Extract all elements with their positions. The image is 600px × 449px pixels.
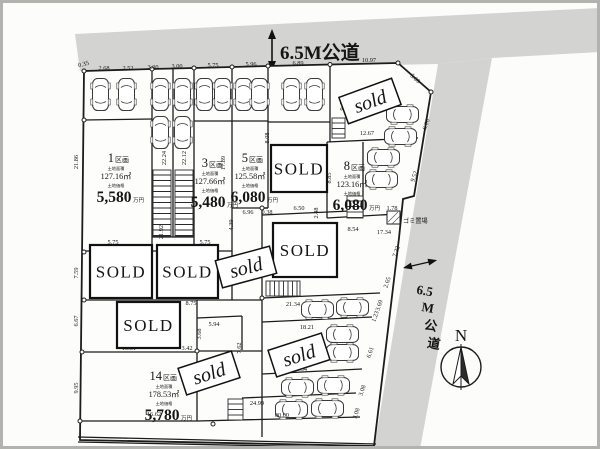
dimension-label: 17.34 bbox=[377, 229, 392, 236]
dimension-label: 5.96 bbox=[245, 61, 256, 68]
car-icon bbox=[282, 79, 301, 111]
sold-text: SOLD bbox=[162, 263, 212, 282]
dimension-label: 6.96 bbox=[242, 209, 253, 216]
boundary-node bbox=[266, 64, 270, 68]
boundary-node bbox=[82, 69, 86, 73]
lot-price: 5,780 bbox=[145, 407, 180, 424]
lot-price-label: 土地価格 bbox=[242, 182, 260, 189]
dimension-label: 21.92 bbox=[158, 225, 165, 239]
lot-price-label: 土地価格 bbox=[344, 190, 362, 197]
car-icon bbox=[366, 170, 398, 189]
dimension-label: 1.78 bbox=[386, 205, 397, 212]
lot-area: 178.53㎡ bbox=[149, 390, 180, 399]
svg-text:公: 公 bbox=[423, 317, 438, 334]
dimension-label: 0.38 bbox=[261, 209, 272, 216]
lot-price-label: 土地価格 bbox=[202, 187, 220, 194]
boundary-node bbox=[82, 250, 86, 254]
car-icon bbox=[195, 79, 214, 111]
dimension-label: 3.68 bbox=[196, 328, 203, 339]
car-icon bbox=[385, 127, 417, 146]
dimension-label: 6.50 bbox=[293, 205, 304, 212]
boundary-node bbox=[80, 350, 84, 354]
sold-stamp: SOLD bbox=[271, 145, 327, 192]
lot-area-label: 土地面積 bbox=[202, 170, 220, 177]
dimension-label: 10.97 bbox=[362, 57, 376, 64]
lot-price-unit: 万円 bbox=[267, 197, 279, 204]
lot-number-suffix: 区画 bbox=[209, 161, 223, 169]
sold-stamp: SOLD bbox=[273, 223, 337, 277]
plot-map: 6.5M公道 6.5 M 公 道 ゴミ置場 N bbox=[0, 0, 600, 449]
lot-number-suffix: 区画 bbox=[115, 156, 129, 164]
car-icon bbox=[302, 300, 334, 319]
dimension-label: 6.67 bbox=[73, 315, 80, 326]
boundary-node bbox=[230, 65, 234, 69]
boundary-node bbox=[429, 90, 433, 94]
sold-stamp: SOLD bbox=[90, 245, 152, 298]
lot-area-label: 土地面積 bbox=[108, 165, 126, 172]
boundary-node bbox=[396, 61, 400, 65]
dimension-label: 9.95 bbox=[73, 382, 80, 393]
car-icon bbox=[327, 325, 359, 344]
sold-text: SOLD bbox=[274, 160, 324, 179]
car-icon bbox=[318, 376, 350, 395]
dimension-label: 4.39 bbox=[228, 219, 235, 230]
lot-area: 127.16㎡ bbox=[101, 172, 132, 181]
lot-area: 127.66㎡ bbox=[195, 177, 226, 186]
dimension-label: 24.99 bbox=[250, 400, 264, 407]
dimension-label: 3.00 bbox=[147, 64, 158, 71]
lot-number-suffix: 区画 bbox=[351, 164, 365, 172]
stairs-icon bbox=[228, 399, 243, 420]
lot-price: 5,480 bbox=[191, 194, 226, 211]
dimension-label: 2.52 bbox=[122, 65, 133, 72]
lot-number: 5 bbox=[242, 151, 248, 165]
lot-price: 5,580 bbox=[97, 189, 132, 206]
lot-number: 8 bbox=[344, 159, 350, 173]
svg-text:道: 道 bbox=[426, 335, 441, 352]
lot-area-label: 土地面積 bbox=[242, 165, 260, 172]
lot-price: 6,080 bbox=[333, 197, 368, 214]
sold-stamp: SOLD bbox=[117, 302, 180, 348]
sold-text: SOLD bbox=[96, 263, 146, 282]
car-icon bbox=[282, 378, 314, 397]
dimension-label: 18.21 bbox=[300, 324, 314, 331]
lot-price-label: 土地価格 bbox=[108, 182, 126, 189]
dimension-label: 22.24 bbox=[161, 150, 168, 165]
lot-area-label: 土地面積 bbox=[156, 383, 174, 390]
dimension-label: 21.86 bbox=[73, 155, 80, 169]
boundary-node bbox=[78, 419, 82, 423]
car-icon bbox=[151, 79, 170, 111]
lot-price-label: 土地価格 bbox=[156, 400, 174, 407]
sold-text: SOLD bbox=[123, 316, 173, 335]
lot-number: 14 bbox=[150, 369, 163, 383]
car-icon bbox=[337, 298, 369, 317]
dimension-label: 8.08 bbox=[264, 132, 271, 143]
lot-price-unit: 万円 bbox=[369, 205, 381, 212]
dimension-label: 2.48 bbox=[313, 207, 320, 218]
dimension-label: 12.67 bbox=[360, 130, 374, 137]
lot-area-label: 土地面積 bbox=[344, 173, 362, 180]
car-icon bbox=[327, 343, 359, 362]
car-icon bbox=[312, 399, 344, 418]
lot-price-unit: 万円 bbox=[181, 415, 193, 422]
north-label: N bbox=[455, 326, 467, 345]
lot-area: 123.16㎡ bbox=[337, 180, 368, 189]
boundary-node bbox=[211, 422, 215, 426]
plot-map-page: 6.5M公道 6.5 M 公 道 ゴミ置場 N bbox=[0, 0, 600, 449]
lot-number-suffix: 区画 bbox=[249, 156, 263, 164]
garbage-box bbox=[387, 211, 400, 224]
dimension-label: 8.75 bbox=[185, 300, 196, 307]
dimension-label: 00.00 bbox=[275, 412, 289, 419]
car-icon bbox=[91, 79, 110, 111]
dimension-label: 8.54 bbox=[347, 226, 359, 233]
lot-number: 3 bbox=[202, 156, 208, 170]
lot-number: 1 bbox=[108, 151, 114, 165]
dimension-label: 5.75 bbox=[207, 62, 218, 69]
lot-price-unit: 万円 bbox=[133, 197, 145, 204]
dimension-label: 3.42 bbox=[181, 345, 192, 352]
car-icon bbox=[173, 117, 192, 149]
stairs-icon bbox=[332, 118, 345, 138]
car-icon bbox=[213, 79, 232, 111]
sold-text: SOLD bbox=[280, 241, 330, 260]
car-icon bbox=[173, 79, 192, 111]
boundary-node bbox=[328, 63, 332, 67]
dimension-label: 22.12 bbox=[181, 151, 188, 165]
boundary-node bbox=[260, 296, 264, 300]
svg-text:M: M bbox=[420, 299, 435, 316]
boundary-node bbox=[192, 66, 196, 70]
car-icon bbox=[368, 148, 400, 167]
lot-area: 125.58㎡ bbox=[235, 172, 266, 181]
car-icon bbox=[305, 79, 324, 111]
dimension-label: 3.00 bbox=[171, 63, 182, 70]
dimension-label: 5.94 bbox=[208, 321, 220, 328]
lot-price: 6,080 bbox=[231, 189, 266, 206]
lot-number-suffix: 区画 bbox=[163, 374, 177, 382]
car-icon bbox=[250, 79, 269, 111]
dimension-label: 7.59 bbox=[73, 267, 80, 278]
car-icon bbox=[117, 79, 136, 111]
boundary-node bbox=[195, 349, 199, 353]
boundary-node bbox=[82, 298, 86, 302]
dimension-label: 2.68 bbox=[98, 65, 109, 72]
car-icon bbox=[151, 117, 170, 149]
stairs-icon bbox=[266, 281, 300, 296]
boundary-node bbox=[82, 118, 86, 122]
svg-text:6.5: 6.5 bbox=[415, 282, 434, 300]
dimension-label: 7.62 bbox=[236, 342, 243, 353]
dimension-label: 21.34 bbox=[286, 301, 301, 308]
sold-stamp: SOLD bbox=[157, 245, 218, 298]
dimension-label: 6.89 bbox=[292, 60, 303, 67]
compass-icon: N bbox=[441, 326, 481, 390]
garbage-label: ゴミ置場 bbox=[403, 217, 428, 225]
